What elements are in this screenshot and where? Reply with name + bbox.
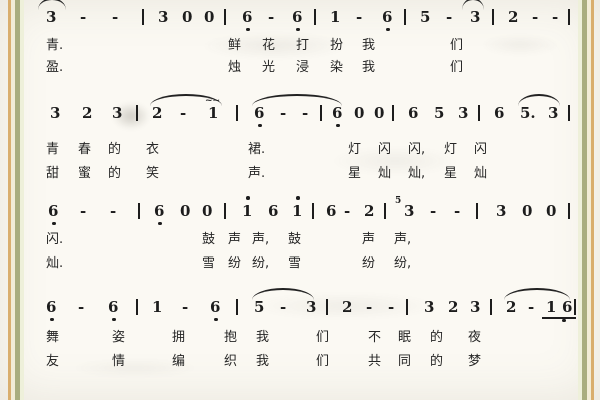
lyric-syllable: 青.: [46, 38, 63, 53]
system-2: 3232-1~~6--60065365.3青春的衣裙.灯闪闪,灯闪甜蜜的笑声.星…: [0, 104, 600, 194]
note: 6: [242, 8, 252, 26]
note: 3: [496, 202, 506, 220]
lyric-syllable: 我: [256, 330, 269, 345]
lyric-syllable: 同: [398, 354, 411, 369]
duration-dash: -: [110, 202, 116, 220]
note: 3: [50, 104, 60, 122]
lyric-syllable: 情: [112, 354, 125, 369]
barline: [406, 299, 408, 315]
grace-note: 5: [395, 192, 401, 210]
octave-dot: [296, 28, 300, 32]
lyric-syllable: 们: [450, 60, 463, 75]
rest: 0: [204, 8, 214, 26]
lyric-syllable: 闪: [378, 142, 391, 157]
barline: [490, 299, 492, 315]
lyric-syllable: 们: [450, 38, 463, 53]
lyric-syllable: 眠: [398, 330, 411, 345]
note: 2: [82, 104, 92, 122]
duration-dash: -: [302, 104, 308, 122]
rest: 0: [180, 202, 190, 220]
duration-dash: -: [80, 8, 86, 26]
lyric-syllable: 纷,: [252, 256, 269, 271]
duration-dash: -: [80, 202, 86, 220]
lyric-syllable: 甜: [46, 166, 59, 181]
octave-dot: [296, 196, 300, 200]
barline: [236, 299, 238, 315]
lyric-syllable: 声,: [394, 232, 411, 247]
note: 3: [458, 104, 468, 122]
barline: [224, 9, 226, 25]
note: 3: [424, 298, 434, 316]
lyric-syllable: 闪,: [408, 142, 425, 157]
lyric-syllable: 浸: [296, 60, 309, 75]
slur-tie-arc: [38, 0, 66, 10]
lyric-syllable: 纷: [362, 256, 375, 271]
duration-dash: -: [552, 8, 558, 26]
lyric-syllable: 的: [430, 330, 443, 345]
barline: [142, 9, 144, 25]
lyric-syllable: 的: [108, 142, 121, 157]
lyric-syllable: 抱: [224, 330, 237, 345]
duration-dash: -: [78, 298, 84, 316]
lyric-syllable: 姿: [112, 330, 125, 345]
lyric-syllable: 灿.: [46, 256, 63, 271]
note: 3: [112, 104, 122, 122]
octave-dot: [336, 124, 340, 128]
lyric-syllable: 不: [368, 330, 381, 345]
note: 6: [48, 202, 58, 220]
barline: [314, 9, 316, 25]
lyric-syllable: 灿: [474, 166, 487, 181]
lyric-syllable: 裙.: [248, 142, 265, 157]
duration-dash: -: [454, 202, 460, 220]
lyric-syllable: 的: [108, 166, 121, 181]
octave-dot: [246, 28, 250, 32]
barline: [136, 299, 138, 315]
system-4: 6-61-65-32--3232-16舞姿拥抱我们不眠的夜友情编织我们共同的梦: [0, 298, 600, 388]
lyric-syllable: 织: [224, 354, 237, 369]
barline: [568, 105, 570, 121]
note: 1: [330, 8, 340, 26]
octave-dot: [112, 318, 116, 322]
lyric-syllable: 灿,: [408, 166, 425, 181]
duration-dash: -: [356, 8, 362, 26]
duration-dash: -: [182, 298, 188, 316]
duration-dash: -: [532, 8, 538, 26]
note: 5: [254, 298, 264, 316]
duration-dash: -: [388, 298, 394, 316]
slur-tie-arc: [462, 0, 484, 10]
note: 5.: [520, 104, 536, 122]
duration-dash: -: [528, 298, 534, 316]
lyric-syllable: 梦: [468, 354, 481, 369]
lyric-syllable: 烛: [228, 60, 241, 75]
note: 6: [494, 104, 504, 122]
lyric-syllable: 声.: [248, 166, 265, 181]
barline: [224, 203, 226, 219]
octave-dot: [50, 318, 54, 322]
barline: [568, 9, 570, 25]
octave-dot: [258, 124, 262, 128]
lyric-syllable: 雪: [288, 256, 301, 271]
lyric-syllable: 的: [430, 354, 443, 369]
system-3: 6--6001616-235--300闪.鼓声声,鼓声声,灿.雪纷纷,雪纷纷,: [0, 202, 600, 292]
barline: [574, 299, 576, 315]
lyric-syllable: 鲜: [228, 38, 241, 53]
note: 3: [548, 104, 558, 122]
lyric-syllable: 闪.: [46, 232, 63, 247]
octave-dot: [246, 196, 250, 200]
barline: [236, 105, 238, 121]
note: 1: [152, 298, 162, 316]
duration-dash: -: [446, 8, 452, 26]
lyric-syllable: 我: [362, 38, 375, 53]
rest: 0: [182, 8, 192, 26]
rest: 0: [374, 104, 384, 122]
barline: [492, 9, 494, 25]
note: 3: [470, 8, 480, 26]
barline: [404, 9, 406, 25]
lyric-syllable: 花: [262, 38, 275, 53]
lyric-syllable: 编: [172, 354, 185, 369]
lyric-syllable: 纷: [228, 256, 241, 271]
lyric-syllable: 扮: [330, 38, 343, 53]
note: 2: [364, 202, 374, 220]
barline: [136, 105, 138, 121]
lyric-syllable: 们: [316, 354, 329, 369]
lyric-syllable: 夜: [468, 330, 481, 345]
lyric-syllable: 灯: [348, 142, 361, 157]
note: 6: [382, 8, 392, 26]
note: 1: [292, 202, 302, 220]
note: 3: [470, 298, 480, 316]
lyric-syllable: 星: [348, 166, 361, 181]
note: 5: [434, 104, 444, 122]
duration-dash: -: [180, 104, 186, 122]
barline: [138, 203, 140, 219]
duration-dash: -: [280, 298, 286, 316]
note: 2: [342, 298, 352, 316]
lyric-syllable: 雪: [202, 256, 215, 271]
note: 1: [242, 202, 252, 220]
lyric-syllable: 声: [362, 232, 375, 247]
note: 2: [152, 104, 162, 122]
barline: [326, 299, 328, 315]
octave-dot: [52, 222, 56, 226]
lyric-syllable: 鼓: [202, 232, 215, 247]
note: 6: [108, 298, 118, 316]
duration-dash: -: [112, 8, 118, 26]
note: 3: [306, 298, 316, 316]
system-1: 3--3006-61-65-32--青.鲜花打扮我们盈.烛光浸染我们: [0, 8, 600, 98]
lyric-syllable: 纷,: [394, 256, 411, 271]
barline: [320, 105, 322, 121]
lyric-syllable: 染: [330, 60, 343, 75]
lyric-syllable: 我: [256, 354, 269, 369]
note: 6: [210, 298, 220, 316]
lyric-syllable: 春: [78, 142, 91, 157]
scanned-sheet-music-page: 3--3006-61-65-32--青.鲜花打扮我们盈.烛光浸染我们3232-1…: [0, 0, 600, 400]
lyric-syllable: 友: [46, 354, 59, 369]
duration-dash: -: [430, 202, 436, 220]
lyric-syllable: 盈.: [46, 60, 63, 75]
octave-dot: [214, 318, 218, 322]
lyric-syllable: 鼓: [288, 232, 301, 247]
lyric-syllable: 们: [316, 330, 329, 345]
lyric-syllable: 闪: [474, 142, 487, 157]
lyric-syllable: 笑: [146, 166, 159, 181]
lyric-syllable: 我: [362, 60, 375, 75]
rest: 0: [354, 104, 364, 122]
note: 6: [268, 202, 278, 220]
barline: [568, 203, 570, 219]
note: 3: [46, 8, 56, 26]
lyric-syllable: 星: [444, 166, 457, 181]
note: 3: [158, 8, 168, 26]
note: 6: [154, 202, 164, 220]
rest: 0: [546, 202, 556, 220]
note: 1~~: [208, 104, 218, 122]
barline: [312, 203, 314, 219]
duration-dash: -: [366, 298, 372, 316]
octave-dot: [386, 28, 390, 32]
barline: [478, 105, 480, 121]
lyric-syllable: 声: [228, 232, 241, 247]
lyric-syllable: 声,: [252, 232, 269, 247]
lyric-syllable: 灿: [378, 166, 391, 181]
note: 6: [332, 104, 342, 122]
lyric-syllable: 衣: [146, 142, 159, 157]
note: 2: [448, 298, 458, 316]
note: 6: [326, 202, 336, 220]
note: 5: [420, 8, 430, 26]
lyric-syllable: 共: [368, 354, 381, 369]
barline: [476, 203, 478, 219]
duration-dash: -: [268, 8, 274, 26]
lyric-syllable: 灯: [444, 142, 457, 157]
note: 6: [408, 104, 418, 122]
barline: [392, 105, 394, 121]
duration-dash: -: [344, 202, 350, 220]
lyric-syllable: 舞: [46, 330, 59, 345]
lyric-syllable: 蜜: [78, 166, 91, 181]
lyric-syllable: 青: [46, 142, 59, 157]
lyric-syllable: 光: [262, 60, 275, 75]
note: 2: [506, 298, 516, 316]
lyric-syllable: 拥: [172, 330, 185, 345]
note: 35: [404, 202, 414, 220]
barline: [384, 203, 386, 219]
lyric-syllable: 打: [296, 38, 309, 53]
score-area: 3--3006-61-65-32--青.鲜花打扮我们盈.烛光浸染我们3232-1…: [0, 0, 600, 400]
rest: 0: [522, 202, 532, 220]
octave-dot: [158, 222, 162, 226]
note: 6: [46, 298, 56, 316]
rest: 0: [202, 202, 212, 220]
duration-dash: -: [280, 104, 286, 122]
octave-dot: [562, 319, 566, 323]
note: 6: [292, 8, 302, 26]
note: 6: [254, 104, 264, 122]
note: 2: [508, 8, 518, 26]
